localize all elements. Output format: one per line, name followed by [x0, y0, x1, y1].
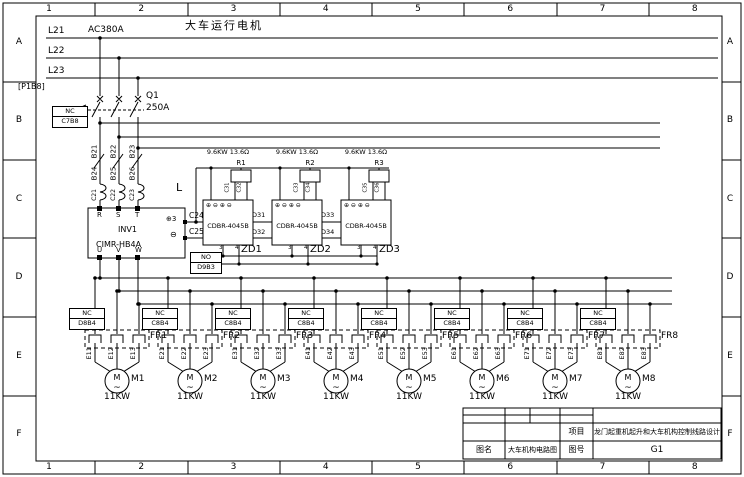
nc-code: C8B4	[508, 319, 542, 328]
resistor-lead-label-2: C34	[307, 180, 312, 196]
nc-label: NC	[289, 309, 323, 319]
motor-wire-label-2: E42	[327, 342, 334, 364]
contactor-ref-box: NC C8B4	[215, 308, 251, 330]
nc-label: NC	[70, 309, 104, 319]
wire-label-b22: B22	[111, 141, 118, 163]
resistor-lead-label-2: C36	[376, 180, 381, 196]
nc-label: NC	[53, 107, 87, 117]
motor-power: 11KW	[95, 393, 139, 402]
terminal-4-label: 4	[373, 246, 377, 252]
motor-branch: M ~ NC C8B4 FR8 E81 E82 E83 M8 11KW	[580, 270, 676, 410]
contactor-ref-box: NC C8B4	[361, 308, 397, 330]
reactor-label: L	[176, 182, 182, 193]
motor-name: M8	[642, 375, 656, 384]
braking-unit-model: CDBR-4045B	[273, 223, 321, 230]
motor-wire-label-1: E21	[159, 342, 166, 364]
ruler-row-right: A	[719, 3, 741, 81]
ruler-col-bottom: 3	[188, 461, 280, 474]
terminal-3-label: 3	[219, 246, 223, 252]
terminal-4-label: 4	[235, 246, 239, 252]
resistor-name: R3	[369, 160, 389, 167]
motor-power: 11KW	[606, 393, 650, 402]
motor-power: 11KW	[314, 393, 358, 402]
ruler-col-top: 5	[372, 3, 464, 16]
motor-wire-label-2: E52	[400, 342, 407, 364]
motor-wire-label-1: E11	[86, 342, 93, 364]
braking-unit: 9.6KW 13.6Ω R1 ⊕ ⊖ ⊕ ⊖ CDBR-4045B C31 C3…	[193, 150, 263, 260]
motor-symbol-letter: M	[552, 373, 559, 382]
breaker-rating: 250A	[146, 104, 169, 113]
contactor-ref-box: NC C8B4	[142, 308, 178, 330]
resistor-name: R2	[300, 160, 320, 167]
wire-label-c22: C22	[111, 184, 117, 206]
ruler-col-bottom: 4	[280, 461, 372, 474]
ruler-row-left: B	[6, 82, 32, 160]
motor-symbol-letter: M	[479, 373, 486, 382]
contactor-ref-box: NC C8B4	[580, 308, 616, 330]
motor-wire-label-3: E53	[422, 342, 429, 364]
motor-wire-label-3: E13	[130, 342, 137, 364]
motor-symbol-letter: M	[260, 373, 267, 382]
wire-label-l23: L23	[48, 67, 64, 76]
resistor-lead-label-1: C33	[295, 180, 300, 196]
ruler-row-left: C	[6, 160, 32, 238]
nc-code: C8B4	[216, 319, 250, 328]
braking-unit: 9.6KW 13.6Ω R2 ⊕ ⊖ ⊕ ⊖ CDBR-4045B C33 C3…	[262, 150, 332, 260]
nc-code: C8B4	[362, 319, 396, 328]
wire-label-b25: B25	[111, 163, 118, 185]
braking-terminals: ⊕ ⊖ ⊕ ⊖	[344, 203, 370, 209]
contactor-ref-box: NC D8B4	[69, 308, 105, 330]
ruler-col-top: 4	[280, 3, 372, 16]
ruler-row-left: A	[6, 3, 32, 81]
drawing-name-label: 图名	[463, 441, 505, 459]
contactor-ref-box: NC C8B4	[288, 308, 324, 330]
overload-relay-label: FR8	[661, 332, 678, 341]
motor-wire-label-2: E32	[254, 342, 261, 364]
ruler-row-left: F	[6, 396, 32, 474]
inverter-terminal-u: U	[97, 247, 102, 254]
schematic-sheet: L21 L22 L23 AC380A 大车运行电机 [P1B8] NC C7B8…	[0, 0, 744, 477]
resistor-lead-label-2: C32	[238, 180, 243, 196]
motor-wire-label-2: E72	[546, 342, 553, 364]
terminal-3-label: 3	[357, 246, 361, 252]
wire-label-b21: B21	[92, 141, 99, 163]
braking-terminals: ⊕ ⊖ ⊕ ⊖	[206, 203, 232, 209]
contactor-ref-box: NC C8B4	[507, 308, 543, 330]
terminal-4-label: 4	[304, 246, 308, 252]
wire-label-b24: B24	[92, 163, 99, 185]
wire-label-b26: B26	[130, 163, 137, 185]
braking-unit-name: ZD1	[241, 245, 262, 255]
motor-wire-label-2: E12	[108, 342, 115, 364]
motor-power: 11KW	[533, 393, 577, 402]
inverter-terminal-w: W	[135, 247, 142, 254]
ruler-row-right: F	[719, 396, 741, 474]
nc-code: C8B4	[435, 319, 469, 328]
ruler-col-bottom: 5	[372, 461, 464, 474]
nc-label: NC	[508, 309, 542, 319]
ruler-row-right: E	[719, 317, 741, 395]
motor-symbol-letter: M	[625, 373, 632, 382]
motor-wire-label-1: E61	[451, 342, 458, 364]
motor-wire-label-1: E31	[232, 342, 239, 364]
ruler-col-top: 2	[95, 3, 187, 16]
motor-wire-label-3: E83	[641, 342, 648, 364]
wire-label-l22: L22	[48, 47, 64, 56]
nc-code: C7B8	[53, 117, 87, 126]
wire-label-b23: B23	[130, 141, 137, 163]
ruler-col-top: 7	[557, 3, 649, 16]
nc-label: NC	[435, 309, 469, 319]
contactor-ref-box: NC C8B4	[434, 308, 470, 330]
ruler-row-right: B	[719, 82, 741, 160]
resistor-lead-label-1: C31	[226, 180, 231, 196]
ruler-row-left: D	[6, 239, 32, 317]
breaker-name: Q1	[146, 92, 159, 101]
inverter-name: INV1	[118, 226, 137, 234]
resistor-name: R1	[231, 160, 251, 167]
braking-unit-model: CDBR-4045B	[204, 223, 252, 230]
braking-unit: 9.6KW 13.6Ω R3 ⊕ ⊖ ⊕ ⊖ CDBR-4045B C35 C3…	[331, 150, 401, 260]
resistor-spec: 9.6KW 13.6Ω	[193, 149, 263, 156]
motor-wire-label-3: E73	[568, 342, 575, 364]
motor-wire-label-2: E62	[473, 342, 480, 364]
inverter-terminal-r: R	[97, 212, 102, 219]
dc-plus-symbol: ⊕3	[166, 216, 176, 223]
motor-symbol-letter: M	[114, 373, 121, 382]
motor-wire-label-2: E82	[619, 342, 626, 364]
inverter-terminal-v: V	[116, 247, 121, 254]
ruler-row-left: E	[6, 317, 32, 395]
wire-label-c21: C21	[92, 184, 98, 206]
motor-wire-label-1: E81	[597, 342, 604, 364]
motor-wire-label-3: E43	[349, 342, 356, 364]
braking-terminals: ⊕ ⊖ ⊕ ⊖	[275, 203, 301, 209]
motor-symbol-letter: M	[406, 373, 413, 382]
project-name: 龙门起重机起升和大车机构控制线路设计	[593, 423, 721, 441]
drawing-no-label: 图号	[560, 441, 593, 459]
ruler-col-top: 3	[188, 3, 280, 16]
breaker-ref-box: NC C7B8	[52, 106, 88, 128]
resistor-lead-label-1: C35	[364, 180, 369, 196]
motor-power: 11KW	[460, 393, 504, 402]
motor-wire-label-1: E71	[524, 342, 531, 364]
ruler-col-bottom: 2	[95, 461, 187, 474]
motor-wire-label-1: E51	[378, 342, 385, 364]
braking-unit-name: ZD3	[379, 245, 400, 255]
motor-wire-label-3: E63	[495, 342, 502, 364]
terminal-3-label: 3	[288, 246, 292, 252]
motor-wire-label-1: E41	[305, 342, 312, 364]
ruler-col-bottom: 6	[464, 461, 556, 474]
nc-label: NC	[216, 309, 250, 319]
resistor-spec: 9.6KW 13.6Ω	[262, 149, 332, 156]
nc-label: NC	[362, 309, 396, 319]
motor-power: 11KW	[387, 393, 431, 402]
motor-symbol-letter: M	[333, 373, 340, 382]
wire-label-l21: L21	[48, 27, 64, 36]
resistor-spec: 9.6KW 13.6Ω	[331, 149, 401, 156]
motor-power: 11KW	[241, 393, 285, 402]
voltage-label: AC380A	[88, 26, 124, 35]
drawing-title: 大车运行电机	[185, 20, 263, 31]
nc-code: C8B4	[581, 319, 615, 328]
braking-unit-model: CDBR-4045B	[342, 223, 390, 230]
ruler-row-right: C	[719, 160, 741, 238]
motor-wire-label-3: E23	[203, 342, 210, 364]
ruler-row-right: D	[719, 239, 741, 317]
nc-label: NC	[581, 309, 615, 319]
wire-label-c23: C23	[130, 184, 136, 206]
inverter-terminal-t: T	[135, 212, 139, 219]
braking-unit-name: ZD2	[310, 245, 331, 255]
nc-code: C8B4	[289, 319, 323, 328]
inverter-terminal-s: S	[116, 212, 120, 219]
nc-code: D8B4	[70, 319, 104, 328]
drawing-no: G1	[593, 441, 721, 459]
project-label: 项目	[560, 423, 593, 441]
motor-wire-label-3: E33	[276, 342, 283, 364]
motor-wire-label-2: E22	[181, 342, 188, 364]
nc-code: C8B4	[143, 319, 177, 328]
ruler-col-top: 6	[464, 3, 556, 16]
nc-label: NC	[143, 309, 177, 319]
motor-symbol-letter: M	[187, 373, 194, 382]
drawing-name: 大车机构电路图	[505, 441, 560, 459]
ruler-col-bottom: 7	[557, 461, 649, 474]
dc-minus-symbol: ⊖	[170, 231, 177, 239]
motor-power: 11KW	[168, 393, 212, 402]
